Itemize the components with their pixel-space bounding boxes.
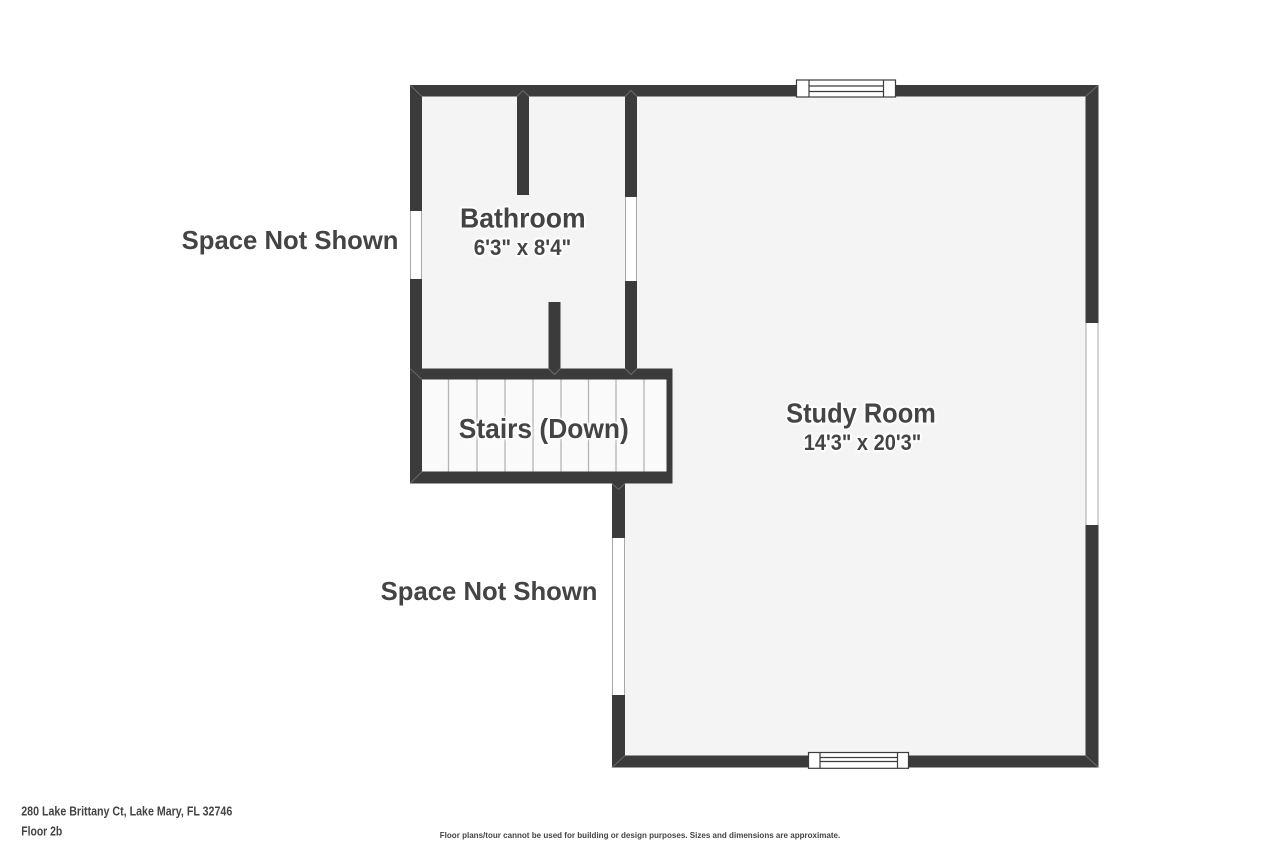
svg-text:Study Room: Study Room — [786, 397, 936, 428]
svg-text:6'3" x 8'4": 6'3" x 8'4" — [474, 235, 572, 260]
svg-text:Space Not Shown: Space Not Shown — [381, 578, 598, 606]
svg-text:280 Lake Brittany Ct, Lake Mar: 280 Lake Brittany Ct, Lake Mary, FL 3274… — [21, 803, 232, 818]
svg-text:14'3" x 20'3": 14'3" x 20'3" — [804, 430, 921, 455]
svg-text:Floor 2b: Floor 2b — [21, 824, 62, 839]
svg-text:Stairs (Down): Stairs (Down) — [459, 413, 629, 444]
svg-text:Space Not Shown: Space Not Shown — [182, 227, 399, 255]
svg-text:Floor plans/tour cannot be use: Floor plans/tour cannot be used for buil… — [440, 830, 841, 840]
svg-text:Bathroom: Bathroom — [460, 203, 586, 234]
